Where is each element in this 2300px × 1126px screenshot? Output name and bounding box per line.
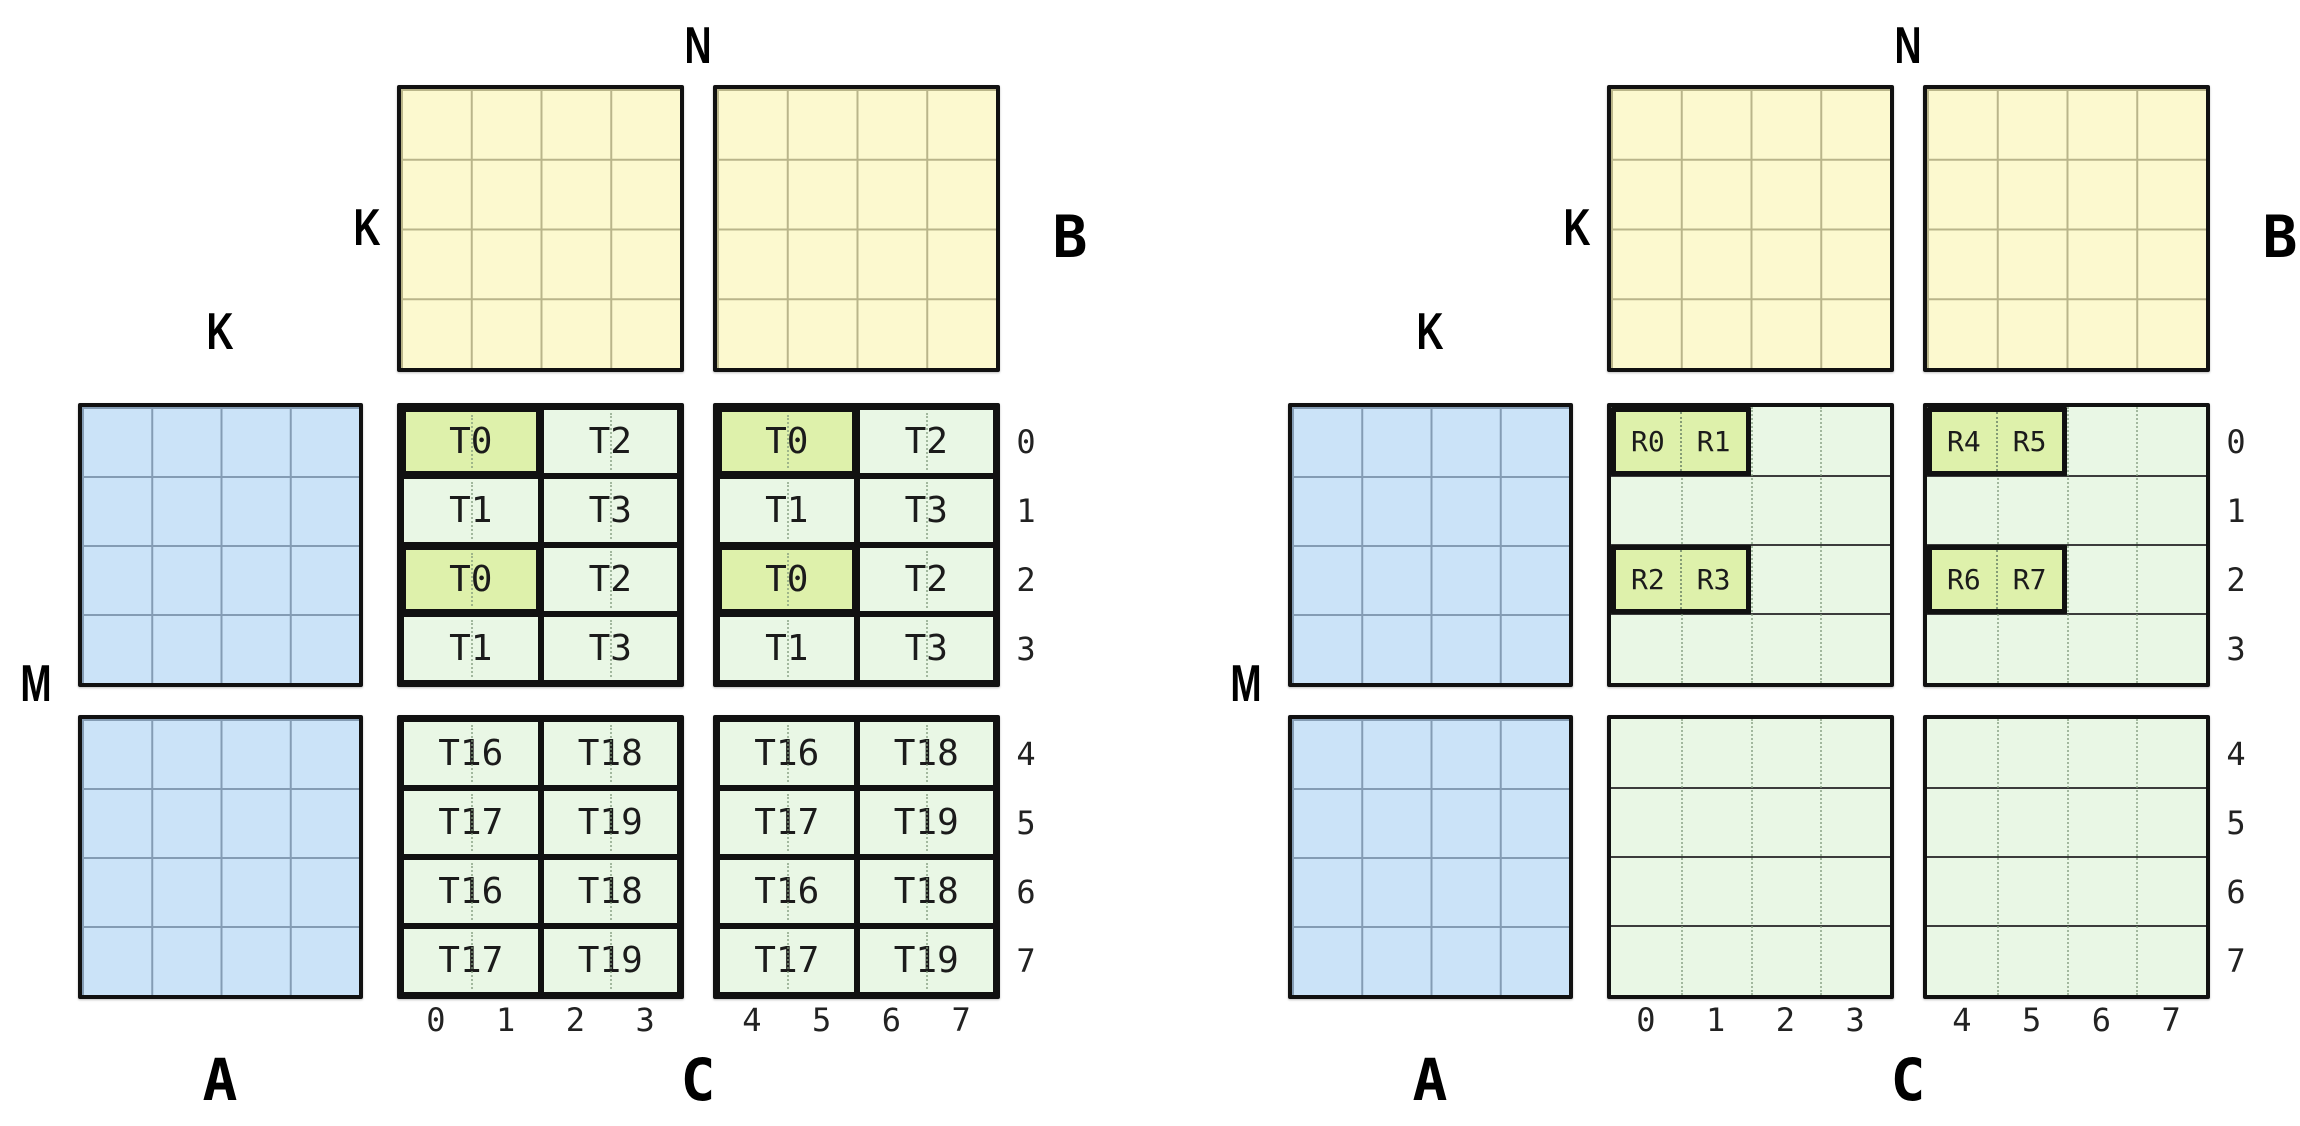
thread-cell: T3 <box>857 476 997 545</box>
diagram-thread-tiles: T0T2T1T3T0T2T1T3T0T2T1T3T0T2T1T3T16T18T1… <box>0 0 1150 1126</box>
c-matrix-block <box>1923 715 2210 999</box>
thread-cell: T1 <box>717 614 857 683</box>
row-index: 0 <box>2226 423 2245 461</box>
column-split-dotted-line <box>787 553 789 606</box>
column-split-dotted-line <box>787 794 789 851</box>
matrix-label-b: B <box>2263 203 2298 271</box>
thread-cell: T16 <box>401 857 541 926</box>
column-split-dotted-line <box>610 482 612 539</box>
grid-vline-dotted <box>1751 407 1753 683</box>
row-index: 5 <box>2226 804 2245 842</box>
row-index: 2 <box>2226 561 2245 599</box>
b-matrix-block <box>1607 85 1894 372</box>
m-axis-label: M <box>1230 654 1261 714</box>
n-axis-label: N <box>684 16 711 76</box>
c-matrix-block: R0R1R2R3 <box>1607 403 1894 687</box>
c-matrix-block: T0T2T1T3T0T2T1T3 <box>713 403 1000 687</box>
row-index: 5 <box>1016 804 1035 842</box>
column-split-dotted-line <box>926 413 928 470</box>
column-split-dotted-line <box>926 551 928 608</box>
grid-vline-dotted <box>2136 719 2138 995</box>
matrix-label-a: A <box>1413 1046 1448 1114</box>
c-matrix-block: T16T18T17T19T16T18T17T19 <box>397 715 684 999</box>
thread-cell: T3 <box>857 614 997 683</box>
thread-cell: T18 <box>541 719 681 788</box>
col-index: 7 <box>951 1001 970 1039</box>
col-index: 1 <box>1706 1001 1725 1039</box>
a-matrix-block <box>1288 403 1573 687</box>
row-index: 7 <box>2226 942 2245 980</box>
a-matrix-block <box>78 715 363 999</box>
thread-cell: T17 <box>401 788 541 857</box>
thread-cell: T3 <box>541 476 681 545</box>
row-index: 7 <box>1016 942 1035 980</box>
column-split-dotted-line <box>926 725 928 782</box>
b-matrix-block <box>713 85 1000 372</box>
column-split-dotted-line <box>787 482 789 539</box>
thread-cell: T16 <box>717 719 857 788</box>
row-index: 3 <box>2226 630 2245 668</box>
column-split-dotted-line <box>787 620 789 677</box>
grid-vline-dotted <box>2067 407 2069 683</box>
column-split-dotted-line <box>610 413 612 470</box>
matrix-label-b: B <box>1053 203 1088 271</box>
k-axis-label-a: K <box>206 302 233 362</box>
column-split-dotted-line <box>787 725 789 782</box>
k-axis-label-b: K <box>353 198 380 258</box>
col-index: 1 <box>496 1001 515 1039</box>
row-index: 6 <box>2226 873 2245 911</box>
grid-vline-dotted <box>1820 407 1822 683</box>
column-split-dotted-line <box>471 553 473 606</box>
thread-cell: T1 <box>401 614 541 683</box>
column-split-dotted-line <box>926 863 928 920</box>
column-split-dotted-line <box>471 725 473 782</box>
thread-cell: T1 <box>717 476 857 545</box>
row-index: 1 <box>2226 492 2245 530</box>
col-index: 6 <box>882 1001 901 1039</box>
thread-cell: T19 <box>541 926 681 995</box>
register-group: R6R7 <box>1927 545 2067 614</box>
row-index: 2 <box>1016 561 1035 599</box>
column-split-dotted-line <box>787 863 789 920</box>
column-split-dotted-line <box>471 415 473 468</box>
column-split-dotted-line <box>610 863 612 920</box>
thread-cell-highlighted: T0 <box>401 545 541 614</box>
thread-cell: T2 <box>857 545 997 614</box>
row-index: 0 <box>1016 423 1035 461</box>
col-index: 5 <box>812 1001 831 1039</box>
column-split-dotted-line <box>610 620 612 677</box>
thread-cell: T19 <box>541 788 681 857</box>
col-index: 0 <box>426 1001 445 1039</box>
thread-cell: T16 <box>401 719 541 788</box>
matrix-label-c: C <box>1891 1046 1926 1114</box>
grid-vline-dotted <box>1681 719 1683 995</box>
b-matrix-block <box>397 85 684 372</box>
thread-cell: T2 <box>541 545 681 614</box>
thread-cell: T18 <box>541 857 681 926</box>
col-index: 5 <box>2022 1001 2041 1039</box>
col-index: 0 <box>1636 1001 1655 1039</box>
k-axis-label-b: K <box>1563 198 1590 258</box>
column-split-dotted-line <box>610 932 612 989</box>
column-split-dotted-line <box>926 482 928 539</box>
col-index: 7 <box>2161 1001 2180 1039</box>
column-split-dotted-line <box>926 794 928 851</box>
col-index: 6 <box>2092 1001 2111 1039</box>
matrix-label-a: A <box>203 1046 238 1114</box>
column-split-dotted-line <box>610 551 612 608</box>
a-matrix-block <box>78 403 363 687</box>
register-label: R0 <box>1616 412 1680 471</box>
grid-vline-dotted <box>2067 719 2069 995</box>
column-split-dotted-line <box>471 932 473 989</box>
thread-cell-highlighted: T0 <box>717 545 857 614</box>
thread-cell: T2 <box>541 407 681 476</box>
column-split-dotted-line <box>471 620 473 677</box>
col-index: 4 <box>1952 1001 1971 1039</box>
column-split-dotted-line <box>926 932 928 989</box>
column-split-dotted-line <box>471 482 473 539</box>
thread-cell: T18 <box>857 857 997 926</box>
diagram-register-tiles: R0R1R2R3R4R5R6R70123456701234567NKKMBAC <box>1210 0 2300 1126</box>
thread-cell: T1 <box>401 476 541 545</box>
row-index: 4 <box>2226 735 2245 773</box>
thread-cell: T17 <box>717 788 857 857</box>
thread-cell: T17 <box>717 926 857 995</box>
row-index: 3 <box>1016 630 1035 668</box>
matrix-label-c: C <box>681 1046 716 1114</box>
register-group: R2R3 <box>1611 545 1751 614</box>
register-label: R5 <box>1996 412 2062 471</box>
column-split-dotted-line <box>926 620 928 677</box>
register-label: R2 <box>1616 550 1680 609</box>
column-split-dotted-line <box>787 415 789 468</box>
row-index: 6 <box>1016 873 1035 911</box>
b-matrix-block <box>1923 85 2210 372</box>
register-label: R4 <box>1932 412 1996 471</box>
c-matrix-block: T16T18T17T19T16T18T17T19 <box>713 715 1000 999</box>
thread-cell-highlighted: T0 <box>401 407 541 476</box>
n-axis-label: N <box>1894 16 1921 76</box>
column-split-dotted-line <box>471 863 473 920</box>
c-matrix-block: R4R5R6R7 <box>1923 403 2210 687</box>
a-matrix-block <box>1288 715 1573 999</box>
register-label: R6 <box>1932 550 1996 609</box>
thread-cell: T3 <box>541 614 681 683</box>
register-label: R1 <box>1680 412 1746 471</box>
grid-vline-dotted <box>1820 719 1822 995</box>
register-group: R0R1 <box>1611 407 1751 476</box>
m-axis-label: M <box>20 654 51 714</box>
thread-cell: T17 <box>401 926 541 995</box>
thread-cell: T19 <box>857 926 997 995</box>
row-index: 1 <box>1016 492 1035 530</box>
col-index: 3 <box>1845 1001 1864 1039</box>
register-group: R4R5 <box>1927 407 2067 476</box>
matrix-tiling-canvas: T0T2T1T3T0T2T1T3T0T2T1T3T0T2T1T3T16T18T1… <box>0 0 2300 1126</box>
col-index: 2 <box>566 1001 585 1039</box>
thread-cell: T18 <box>857 719 997 788</box>
col-index: 2 <box>1776 1001 1795 1039</box>
column-split-dotted-line <box>787 932 789 989</box>
k-axis-label-a: K <box>1416 302 1443 362</box>
c-matrix-block <box>1607 715 1894 999</box>
grid-vline-dotted <box>1751 719 1753 995</box>
row-index: 4 <box>1016 735 1035 773</box>
column-split-dotted-line <box>471 794 473 851</box>
grid-vline-dotted <box>2136 407 2138 683</box>
thread-cell: T16 <box>717 857 857 926</box>
register-label: R3 <box>1680 550 1746 609</box>
thread-cell: T19 <box>857 788 997 857</box>
column-split-dotted-line <box>610 725 612 782</box>
col-index: 3 <box>635 1001 654 1039</box>
grid-vline-dotted <box>1997 719 1999 995</box>
register-label: R7 <box>1996 550 2062 609</box>
thread-cell: T2 <box>857 407 997 476</box>
col-index: 4 <box>742 1001 761 1039</box>
thread-cell-highlighted: T0 <box>717 407 857 476</box>
column-split-dotted-line <box>610 794 612 851</box>
c-matrix-block: T0T2T1T3T0T2T1T3 <box>397 403 684 687</box>
